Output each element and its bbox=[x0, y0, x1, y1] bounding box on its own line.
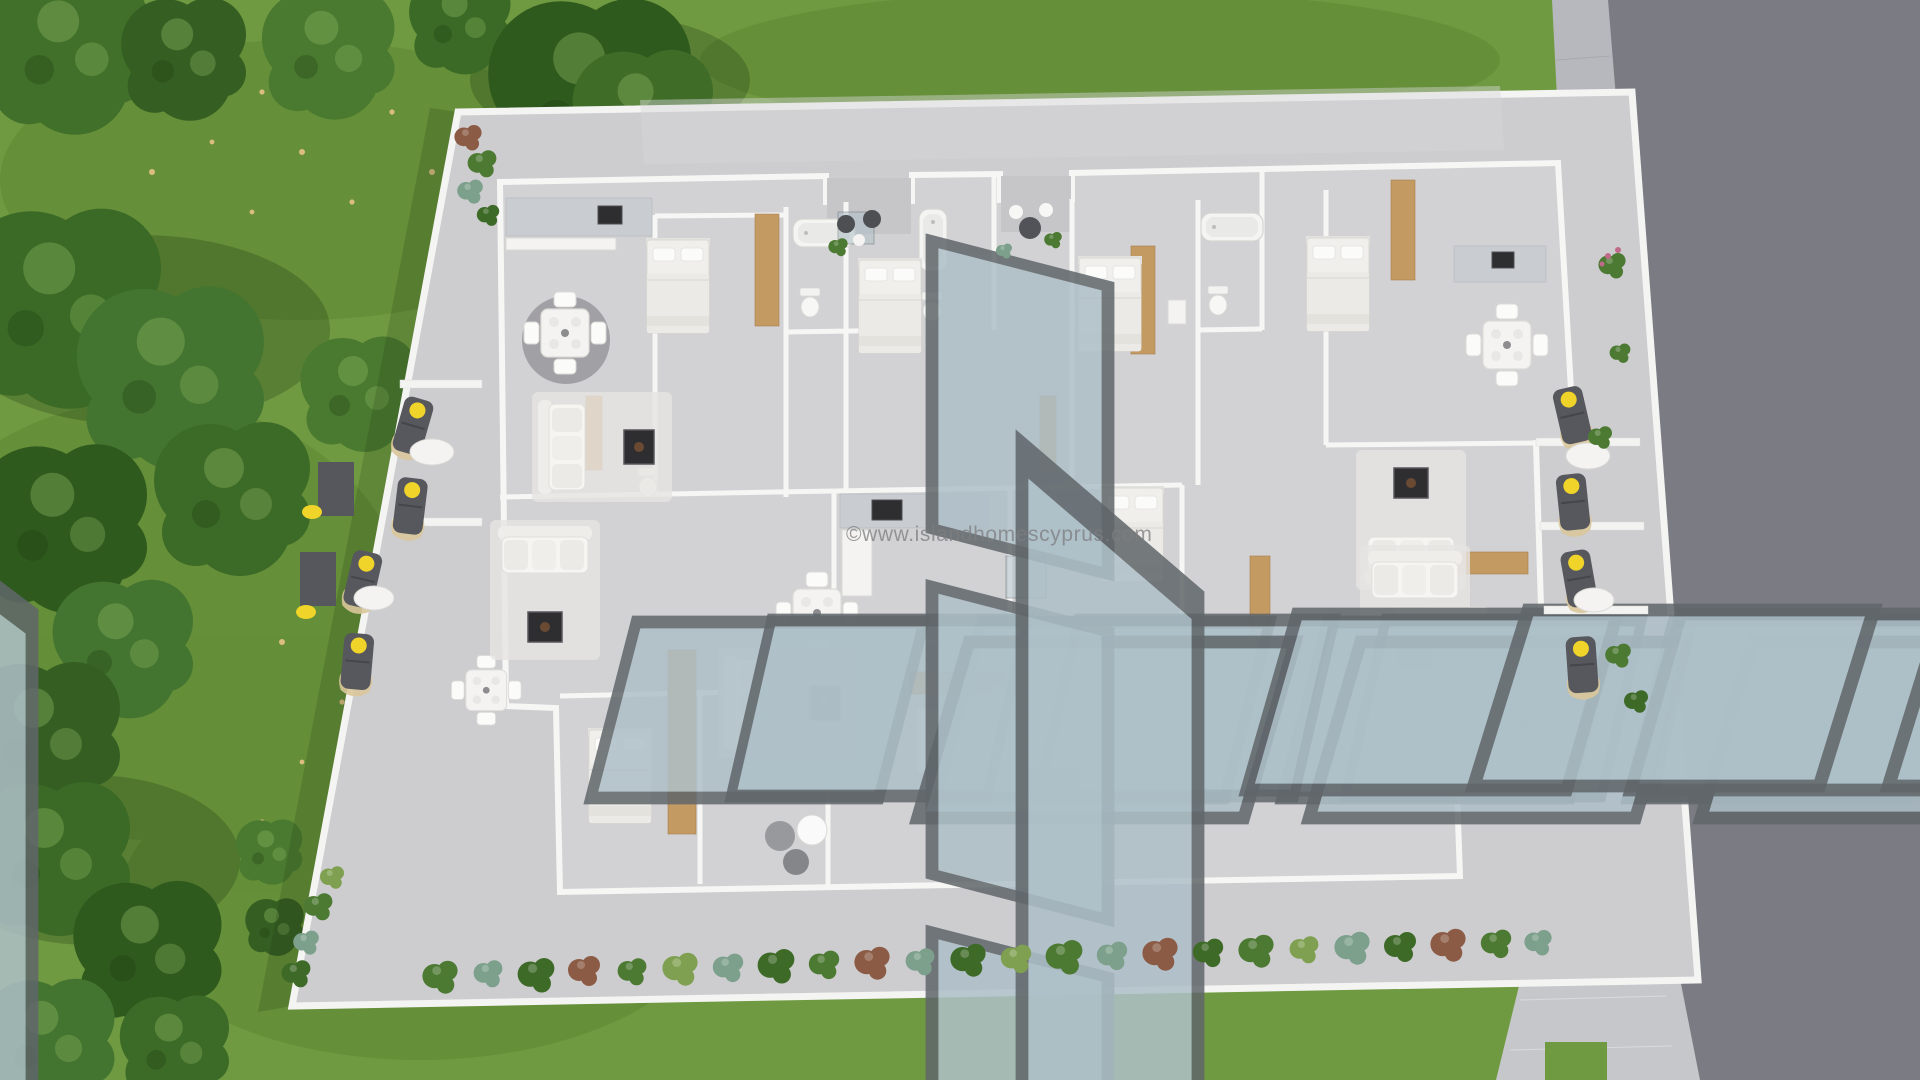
stool bbox=[783, 849, 809, 875]
sofa-tv-group bbox=[532, 392, 672, 502]
watermark-text: ©www.islandhomescyprus.com bbox=[846, 523, 1153, 546]
balcony-table bbox=[410, 439, 454, 465]
flower bbox=[1615, 247, 1621, 253]
stool bbox=[765, 821, 795, 851]
bed bbox=[646, 238, 710, 333]
floorplan-render: ©www.islandhomescyprus.com bbox=[0, 0, 1920, 1080]
balcony-partition bbox=[1540, 522, 1644, 530]
outdoor-desk bbox=[318, 462, 354, 516]
yellow-chair bbox=[296, 605, 316, 619]
bed bbox=[858, 258, 922, 353]
balcony-partition bbox=[400, 380, 482, 388]
flower bbox=[1605, 253, 1611, 259]
kitchen-top-right bbox=[1454, 246, 1546, 282]
flower bbox=[1600, 262, 1605, 267]
scene-canvas: ©www.islandhomescyprus.com bbox=[0, 0, 1920, 1080]
wardrobe bbox=[1391, 180, 1415, 280]
sofa-tv-group bbox=[490, 520, 600, 660]
sun-lounger bbox=[1564, 636, 1601, 701]
balcony-table bbox=[354, 586, 394, 610]
toilet bbox=[1208, 286, 1228, 315]
wardrobe bbox=[755, 214, 779, 326]
stool bbox=[797, 815, 827, 845]
balcony-table bbox=[1574, 588, 1614, 612]
outdoor-desk bbox=[300, 552, 336, 606]
yellow-chair bbox=[302, 505, 322, 519]
tree bbox=[120, 995, 229, 1080]
sink bbox=[1168, 300, 1186, 324]
grass-patch bbox=[1545, 1042, 1607, 1080]
toilet bbox=[800, 288, 820, 317]
bathtub bbox=[1201, 213, 1263, 241]
bed bbox=[1306, 236, 1370, 331]
